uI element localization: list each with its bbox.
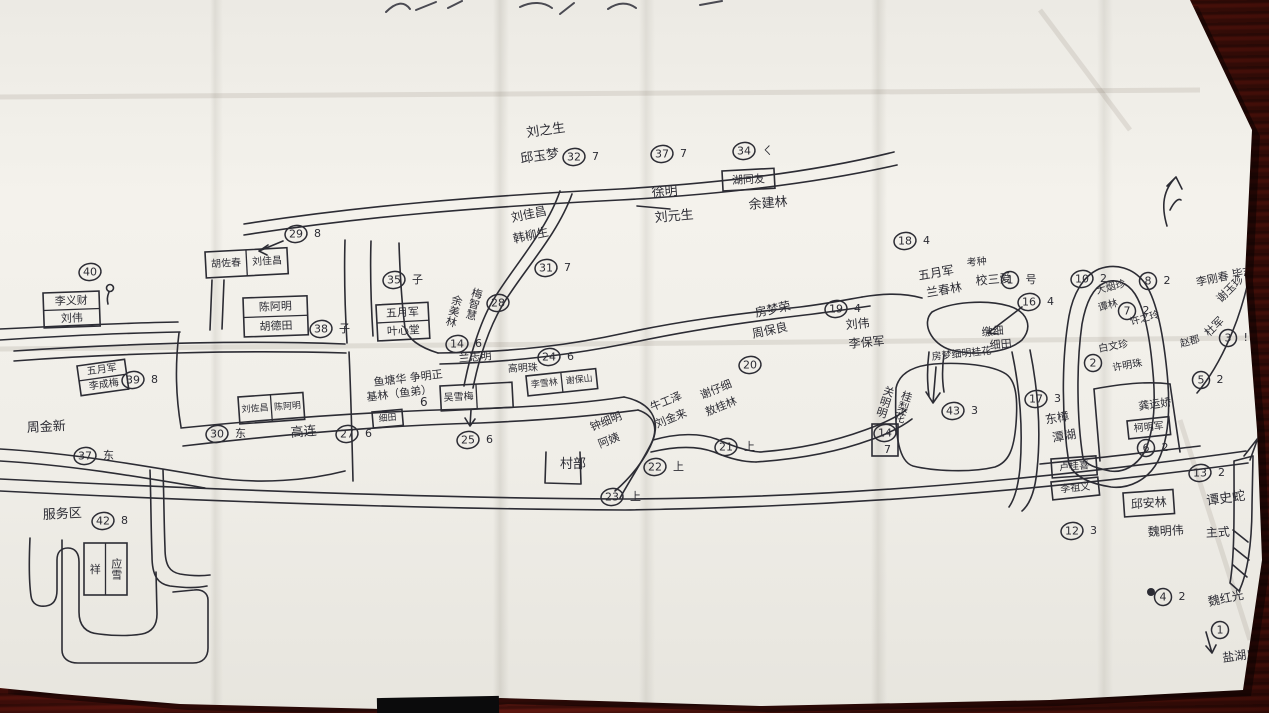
circled-number-value: 16: [1022, 296, 1036, 309]
map-label: 兰春林: [925, 280, 963, 300]
circled-number-suffix: 上: [744, 440, 755, 453]
house-box: 李义财刘伟: [43, 291, 100, 328]
circled-number: 1号: [1000, 270, 1036, 289]
circled-number: 194: [824, 299, 861, 319]
circled-number-suffix: 2: [1100, 272, 1107, 285]
house-box: 柯明军: [1127, 417, 1171, 439]
house-box-label: 吴雪梅: [443, 389, 474, 404]
map-label: 潭湖: [1051, 426, 1077, 445]
map-label: 7: [884, 443, 891, 456]
circled-number-suffix: 3: [1054, 392, 1061, 405]
house-box: 邱安林: [1123, 490, 1175, 517]
circled-number: 42: [1153, 587, 1185, 606]
house-box-label: 卢桂喜: [1059, 458, 1090, 473]
circled-number-value: 6: [1143, 442, 1150, 455]
circled-number-suffix: 上: [630, 490, 641, 503]
map-label: 高连: [290, 423, 317, 441]
arrow-to-lake-household: [1206, 632, 1216, 653]
sketch-map: 刘之生邱玉梦刘佳昌韩柳生徐明刘元生余建林梅智慧余美林兰志明高明珠鱼塘华 争明正基…: [0, 0, 1269, 713]
map-label: 主式: [1205, 525, 1230, 540]
circled-number-value: 18: [898, 235, 912, 248]
house-box-label: 叶心堂: [387, 323, 421, 338]
circled-number-value: 13: [1193, 467, 1207, 480]
map-label: 考种: [966, 254, 987, 269]
road-path: [1094, 383, 1170, 389]
circled-number-value: 31: [539, 262, 553, 275]
circled-number: 22上: [643, 457, 684, 477]
circled-number-suffix: 6: [567, 350, 574, 363]
circled-number-suffix: 8: [314, 227, 321, 240]
circled-number: 298: [284, 224, 321, 244]
circled-number-suffix: 号: [1026, 273, 1037, 286]
circled-number-suffix: 6: [365, 427, 372, 440]
map-label: 许明珠: [1111, 356, 1143, 374]
circled-number-suffix: 7: [592, 150, 599, 163]
circled-number-suffix: 7: [680, 147, 687, 160]
map-label: 周金新: [26, 418, 66, 436]
house-box: 胡佐春刘佳昌: [205, 248, 288, 278]
map-label: 东樟: [1044, 408, 1070, 427]
circled-number-value: 1: [1007, 274, 1014, 287]
circled-number: 327: [562, 147, 599, 167]
house-box-label: 应雪: [110, 557, 123, 581]
road-path: [928, 352, 930, 396]
map-label: 刘元生: [654, 208, 694, 226]
circled-number-suffix: 2: [1218, 466, 1225, 479]
map-label: 房梦细明桂花: [931, 344, 992, 363]
circled-number-value: 24: [542, 351, 556, 364]
circled-number-value: 29: [289, 228, 303, 241]
circled-number-value: 27: [340, 428, 354, 441]
circled-number-suffix: 6: [486, 433, 493, 446]
house-box-label: 湖同友: [732, 171, 766, 187]
circled-number: 433: [941, 401, 978, 421]
house-box: 祥应雪: [84, 543, 127, 595]
circled-number: 256: [456, 430, 493, 450]
circled-number-value: 42: [96, 515, 110, 528]
house-box-label: 谢保山: [565, 372, 593, 387]
circled-number-suffix: 2: [1164, 274, 1171, 287]
house-box: 李祖义: [1051, 477, 1100, 500]
circled-number-suffix: 6: [475, 337, 482, 350]
circled-number-value: 40: [83, 266, 97, 279]
circled-number-suffix: 3: [971, 404, 978, 417]
circled-number-value: 14: [450, 338, 464, 351]
map-label: 高明珠: [507, 360, 538, 375]
circled-number-value: 32: [567, 151, 581, 164]
house-box: 吴雪梅: [440, 382, 513, 411]
map-label: 钟细明: [588, 408, 624, 433]
circled-number-suffix: 4: [1047, 295, 1054, 308]
map-label: 魏明伟: [1147, 522, 1184, 539]
circled-number-value: 34: [737, 145, 751, 158]
circled-number: 35子: [382, 270, 423, 290]
map-label: 徐明: [651, 184, 678, 201]
circled-number-suffix: 东: [235, 427, 246, 440]
circled-number-value: 17: [1029, 393, 1043, 406]
road-path: [1094, 389, 1100, 461]
house-box-label: 邱安林: [1130, 494, 1167, 511]
filled-dot: [1147, 588, 1155, 596]
circled-number-value: 4: [1160, 591, 1167, 604]
circled-number-suffix: ㄑ: [762, 144, 773, 157]
map-label: 服务区: [42, 505, 82, 523]
name-underline: [637, 206, 670, 209]
map-label: 谭林: [1096, 296, 1119, 314]
circled-number-value: 25: [461, 434, 475, 447]
map-label: 阿姨: [596, 430, 622, 451]
circled-number: 173: [1024, 389, 1061, 409]
house-box: 陈阿明胡德田: [243, 296, 308, 337]
house-box-label: 胡德田: [259, 318, 292, 333]
map-label: 余美林: [443, 292, 464, 329]
paper-creases: [0, 10, 1260, 640]
circled-number: 276: [335, 424, 372, 444]
map-label: 刘伟: [845, 316, 870, 332]
circled-number: 132: [1188, 463, 1225, 483]
circled-number-value: 21: [719, 441, 733, 454]
circled-number: 184: [893, 231, 930, 251]
road-path: [222, 280, 224, 329]
map-label: 龚运娇: [1137, 395, 1172, 413]
circled-number: 62: [1136, 438, 1168, 457]
map-label: 五月军: [917, 263, 955, 283]
paper-sheet: 刘之生邱玉梦刘佳昌韩柳生徐明刘元生余建林梅智慧余美林兰志明高明珠鱼塘华 争明正基…: [0, 0, 1269, 713]
circled-number: 1: [1210, 620, 1229, 639]
house-box-label: 五月军: [386, 305, 420, 320]
map-label: 李保军: [848, 333, 885, 351]
circled-number: 123: [1060, 521, 1097, 541]
map-label: 缴细: [981, 323, 1004, 339]
circled-number: 246: [537, 347, 574, 367]
map-label: 细田: [989, 337, 1012, 352]
circled-number-value: 3: [1225, 332, 1232, 345]
circled-number-value: 2: [1090, 357, 1097, 370]
road-path: [0, 322, 178, 329]
map-label: 6: [420, 395, 428, 409]
circled-number-value: 22: [648, 461, 662, 474]
title-strokes: [386, 1, 722, 14]
circled-number: 2: [1083, 353, 1102, 372]
circled-number: 20: [738, 355, 762, 375]
map-label: 赵郡: [1178, 332, 1201, 350]
circled-number-suffix: 2: [1217, 373, 1224, 386]
circled-number-value: 37: [78, 450, 92, 463]
circled-number-suffix: 4: [923, 234, 930, 247]
road-path: [862, 294, 922, 298]
circled-number-suffix: 子: [339, 322, 350, 335]
circled-number-value: 37: [655, 148, 669, 161]
circled-number-value: 10: [1075, 273, 1089, 286]
house-box: 五月军叶心堂: [376, 302, 430, 341]
house-box-label: 刘伟: [61, 311, 83, 325]
map-annotations: 刘之生邱玉梦刘佳昌韩柳生徐明刘元生余建林梅智慧余美林兰志明高明珠鱼塘华 争明正基…: [26, 121, 1265, 665]
map-label: 谭史蛇: [1205, 489, 1246, 509]
house-box: 五月军李成梅: [77, 359, 129, 395]
house-box-label: 柯明军: [1133, 419, 1164, 435]
house-box-label: 陈阿明: [259, 299, 292, 314]
photo-of-hand-drawn-map: 刘之生邱玉梦刘佳昌韩柳生徐明刘元生余建林梅智慧余美林兰志明高明珠鱼塘华 争明正基…: [0, 0, 1269, 713]
road-path: [183, 410, 638, 446]
circled-number-value: 19: [829, 303, 843, 316]
circled-number-value: 35: [387, 274, 401, 287]
circled-number: 428: [91, 511, 128, 531]
north-arrow-icon: [1164, 177, 1182, 226]
map-label: 余建林: [748, 194, 788, 213]
circled-number-value: 20: [743, 359, 757, 372]
circled-number: 317: [534, 258, 571, 278]
house-box-label: 胡佐春: [211, 256, 242, 271]
map-label: 杜军: [1201, 314, 1226, 339]
circled-number-suffix: 8: [151, 373, 158, 386]
circled-number-value: 30: [210, 428, 224, 441]
circled-number: 37东: [73, 446, 114, 466]
circled-number: 377: [650, 144, 687, 164]
circled-number-suffix: 4: [854, 302, 861, 315]
circled-number-suffix: !: [1244, 331, 1248, 344]
circled-number-value: 1: [1217, 624, 1224, 637]
map-label: 周保良: [751, 319, 789, 341]
circled-number: 34ㄑ: [732, 141, 773, 161]
map-label: 刘之生: [525, 121, 566, 141]
road-path: [163, 470, 210, 576]
map-label: 韩柳生: [512, 224, 550, 246]
map-label: 村部: [560, 457, 586, 472]
road-path: [1170, 384, 1180, 452]
road-path: [651, 448, 756, 463]
road-path: [14, 352, 346, 361]
circled-number: 164: [1017, 292, 1054, 312]
circled-number-suffix: 2: [1143, 304, 1150, 317]
circled-number-value: 38: [314, 323, 328, 336]
circled-number-value: 28: [491, 297, 505, 310]
house-box-label: 李雪林: [530, 376, 558, 391]
circled-number-value: 23: [605, 491, 619, 504]
house-box-label: 李义财: [55, 293, 88, 308]
circled-number-suffix: 上: [673, 460, 684, 473]
circled-number-value: 8: [1145, 275, 1152, 288]
circled-number-value: 5: [1198, 374, 1205, 387]
map-label: 梅智慧: [463, 285, 484, 322]
tower-flag: [1244, 438, 1258, 460]
road-path: [210, 280, 212, 330]
house-box-label: 陈阿明: [274, 399, 302, 413]
circled-number-value: 43: [946, 405, 960, 418]
circled-number-value: 12: [1065, 525, 1079, 538]
circled-number-suffix: 3: [1090, 524, 1097, 537]
circled-number-suffix: 2: [1179, 590, 1186, 603]
road-path: [0, 332, 180, 340]
object-at-bottom-edge: [377, 696, 499, 713]
circled-number: 28: [486, 293, 510, 313]
circled-number-value: 14: [878, 427, 892, 440]
circled-number-suffix: 2: [1162, 441, 1169, 454]
house-box-label: 祥: [88, 562, 101, 574]
circled-number-suffix: 东: [103, 449, 114, 462]
circled-number: 40: [78, 262, 102, 282]
roads: [0, 152, 1250, 663]
road-path: [349, 352, 353, 481]
circled-number-value: 7: [1124, 305, 1131, 318]
circled-number-suffix: 7: [564, 261, 571, 274]
pin-icon: [107, 285, 114, 305]
house-box-label: 李祖义: [1060, 479, 1091, 495]
tower-structure: [1230, 456, 1253, 591]
circled-number-suffix: 子: [412, 273, 423, 286]
circled-number-suffix: 8: [121, 514, 128, 527]
house-box-label: 刘佳昌: [252, 253, 283, 268]
pond-outline: [927, 302, 1027, 353]
circled-number: 38子: [309, 319, 350, 339]
road-path: [29, 538, 157, 636]
road-path: [371, 241, 373, 336]
road-path: [620, 410, 655, 498]
house-box-label: 刘佐昌: [241, 401, 269, 415]
road-path: [440, 306, 870, 364]
map-label: 邱玉梦: [519, 147, 560, 167]
